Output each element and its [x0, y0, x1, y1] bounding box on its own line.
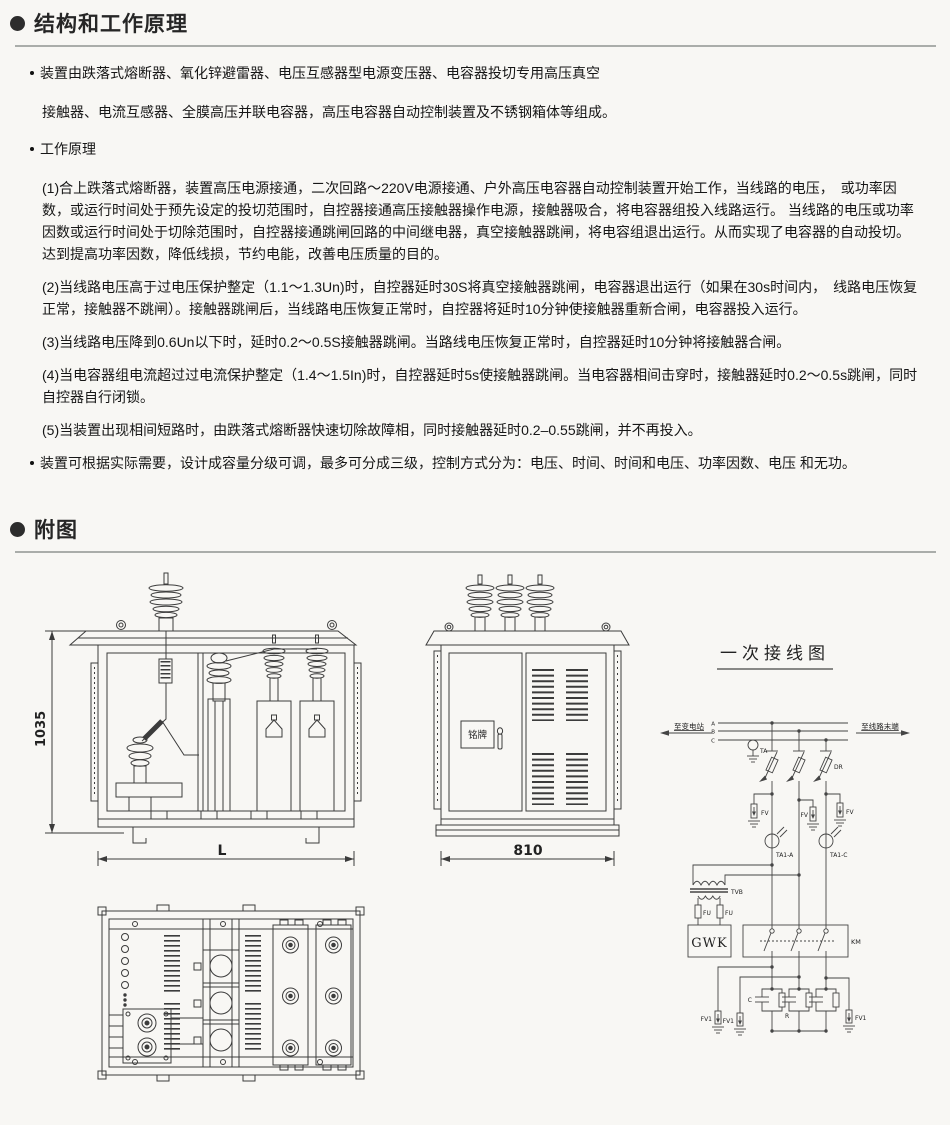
front-height-dimension: 1035 — [34, 711, 49, 747]
list-bullet-icon — [30, 71, 34, 75]
km-label: KM — [851, 938, 861, 946]
ct-c-label: TA1-C — [829, 852, 847, 859]
fv1-label-b: FV1 — [723, 1018, 735, 1025]
header-rule — [15, 45, 936, 47]
bus-c-label: C — [711, 739, 715, 745]
fv-label-c: FV — [846, 809, 854, 816]
fv1-label-a: FV1 — [701, 1016, 713, 1023]
principle-paragraph-4: (4)当电容器组电流超过过电流保护整定（1.4～1.5In)时，自控器延时5s使… — [42, 364, 922, 408]
primary-wiring-diagram: 一次接线图 A B C 至变电站 至线路末端 TA DR FV FV FV TA… — [648, 637, 948, 1097]
principle-paragraph-5: (5)当装置出现相间短路时，由跌落式熔断器快速切除故障相，同时接触器延时0.2–… — [42, 419, 922, 441]
section-header-structure: 结构和工作原理 — [0, 0, 950, 38]
intro-text-2: 接触器、电流互感器、全膜高压并联电容器，高压电容器自动控制装置及不锈钢箱体等组成… — [42, 104, 616, 120]
bus-b-label: B — [711, 730, 715, 736]
dr-label: DR — [834, 764, 843, 771]
to-line-end-label: 至线路末端 — [861, 721, 899, 731]
fv-label-b: FV — [800, 812, 808, 819]
intro-text-1: 装置由跌落式熔断器、氧化锌避雷器、电压互感器型电源变压器、电容器投切专用高压真空 — [40, 65, 600, 81]
list-bullet-icon — [30, 147, 34, 151]
resistor-label: R — [785, 1013, 789, 1020]
section-figures: 附图 — [0, 474, 950, 553]
front-width-dimension: L — [218, 843, 227, 859]
fu-label-1: FU — [703, 910, 711, 917]
section-title-figures: 附图 — [34, 514, 78, 544]
ct-a-label: TA1-A — [775, 852, 794, 859]
nameplate-label: 铭牌 — [468, 729, 488, 741]
to-substation-label: 至变电站 — [674, 721, 704, 731]
top-view-drawing — [95, 903, 380, 1098]
section-bullet-icon — [10, 16, 25, 31]
section-title: 结构和工作原理 — [34, 8, 188, 38]
figure-area: 1035 L — [0, 563, 950, 1115]
closing-text: 装置可根据实际需要，设计成容量分级可调，最多可分成三级，控制方式分为：电压、时间… — [40, 455, 856, 471]
side-view-drawing: 铭牌 810 — [420, 571, 640, 876]
front-view-drawing: 1035 L — [36, 571, 381, 876]
ta-label: TA — [759, 748, 768, 755]
document-page: 结构和工作原理 装置由跌落式熔断器、氧化锌避雷器、电压互感器型电源变压器、电容器… — [0, 0, 950, 1125]
principle-paragraph-2: (2)当线路电压高于过电压保护整定（1.1～1.3Un)时，自控器延时30S将真… — [42, 276, 922, 320]
gwk-label: GWK — [691, 936, 727, 951]
bus-a-label: A — [711, 722, 715, 728]
side-width-dimension: 810 — [513, 843, 542, 859]
principle-label-text: 工作原理 — [40, 141, 96, 157]
intro-line-1: 装置由跌落式熔断器、氧化锌避雷器、电压互感器型电源变压器、电容器投切专用高压真空 — [30, 62, 922, 84]
fv-label-a: FV — [761, 810, 769, 817]
principle-paragraph-3: (3)当线路电压降到0.6Un以下时，延时0.2～0.5S接触器跳闸。当路线电压… — [42, 331, 922, 353]
tvb-label: TVB — [730, 889, 743, 896]
principle-label: 工作原理 — [30, 138, 922, 160]
principle-paragraph-1: (1)合上跌落式熔断器，装置高压电源接通，二次回路～220V电源接通、户外高压电… — [42, 177, 922, 265]
closing-note: 装置可根据实际需要，设计成容量分级可调，最多可分成三级，控制方式分为：电压、时间… — [30, 452, 922, 474]
intro-line-2: 接触器、电流互感器、全膜高压并联电容器，高压电容器自动控制装置及不锈钢箱体等组成… — [30, 101, 922, 123]
header-rule — [15, 551, 936, 553]
fu-label-2: FU — [725, 910, 733, 917]
fv1-label-c: FV1 — [855, 1015, 867, 1022]
section-bullet-icon — [10, 522, 25, 537]
schematic-title: 一次接线图 — [720, 644, 830, 664]
list-bullet-icon — [30, 461, 34, 465]
capacitor-label: C — [748, 997, 752, 1004]
body-text: 装置由跌落式熔断器、氧化锌避雷器、电压互感器型电源变压器、电容器投切专用高压真空… — [30, 62, 922, 474]
section-structure: 结构和工作原理 — [0, 0, 950, 47]
section-header-figures: 附图 — [0, 474, 950, 544]
